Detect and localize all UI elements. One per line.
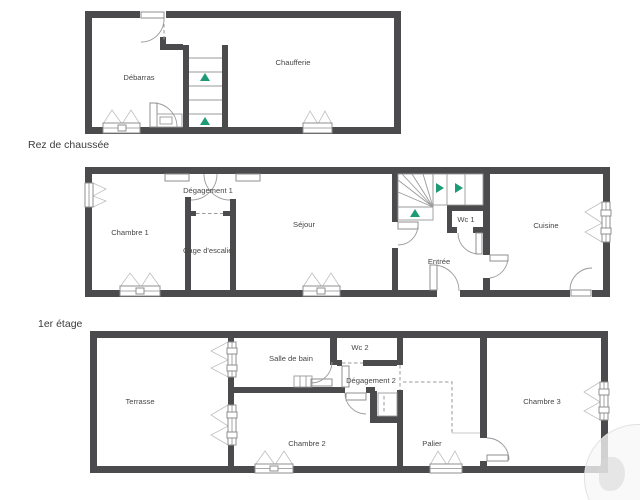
door-leaf bbox=[346, 393, 366, 400]
plan-ground: Chambre 1 Dégagement 1 Cage d'escalier S… bbox=[85, 167, 610, 297]
wall-segment bbox=[85, 11, 92, 134]
door-leaf bbox=[236, 174, 260, 181]
wall-segment bbox=[90, 466, 608, 473]
wall-segment bbox=[160, 44, 183, 50]
room-label-wc1: Wc 1 bbox=[457, 215, 474, 224]
window-cuisine-right bbox=[585, 202, 611, 242]
wall-segment bbox=[480, 461, 487, 466]
wall-segment bbox=[447, 205, 483, 211]
wall-segment bbox=[191, 211, 196, 216]
wall-segment bbox=[483, 278, 490, 290]
door-chambre2 bbox=[345, 393, 366, 414]
stairwell-opening-palier bbox=[403, 382, 480, 433]
door-swing-arc bbox=[570, 268, 592, 290]
wall-segment bbox=[397, 390, 403, 466]
ground-walls bbox=[85, 167, 610, 297]
wall-segment bbox=[363, 360, 397, 366]
closet-degagement2 bbox=[378, 393, 397, 416]
door-leaf bbox=[487, 455, 508, 461]
watermark-blob bbox=[599, 457, 625, 491]
door-leaf bbox=[398, 222, 418, 229]
wall-segment bbox=[90, 331, 608, 338]
door-leaf bbox=[165, 174, 189, 181]
door-leaf bbox=[430, 265, 437, 290]
window-terrasse-chambre2 bbox=[211, 405, 237, 445]
plan-first: Terrasse Salle de bain Wc 2 Dégagement 2… bbox=[90, 331, 608, 473]
basement-window-right bbox=[303, 111, 332, 133]
wall-segment bbox=[222, 45, 228, 127]
room-label-degagement2: Dégagement 2 bbox=[346, 376, 396, 385]
basement-window-left bbox=[103, 110, 140, 133]
wall-segment bbox=[483, 174, 490, 255]
floor-label-rez-de-chaussee: Rez de chaussée bbox=[28, 139, 109, 151]
door-entree-cuisine bbox=[490, 255, 508, 278]
room-label-chambre1: Chambre 1 bbox=[111, 228, 149, 237]
wall-segment bbox=[473, 227, 483, 233]
stair-direction-arrow-icon bbox=[200, 117, 210, 125]
wall-segment bbox=[234, 387, 345, 393]
door-salle-de-bain bbox=[311, 362, 332, 386]
door-leaf bbox=[476, 233, 482, 254]
room-label-wc2: Wc 2 bbox=[351, 343, 368, 352]
wall-segment bbox=[370, 416, 398, 423]
door-leaf bbox=[571, 290, 591, 296]
room-label-chambre3: Chambre 3 bbox=[523, 397, 561, 406]
stair-direction-arrow-icon bbox=[410, 209, 420, 217]
wall-segment bbox=[85, 290, 610, 297]
wall-segment bbox=[397, 338, 403, 365]
wall-segment bbox=[392, 174, 398, 222]
room-label-chaufferie: Chaufferie bbox=[276, 58, 311, 67]
wall-segment bbox=[330, 338, 337, 365]
wall-segment bbox=[85, 167, 610, 174]
basement-stairs bbox=[189, 58, 222, 125]
room-label-debarras: Débarras bbox=[123, 73, 154, 82]
stair-direction-arrow-icon bbox=[436, 183, 444, 193]
stair-direction-arrow-icon bbox=[455, 183, 463, 193]
wall-segment bbox=[337, 360, 342, 366]
floor-label-1er-etage: 1er étage bbox=[38, 318, 82, 330]
cabinet-inner bbox=[160, 117, 172, 124]
wall-segment bbox=[85, 11, 401, 18]
room-label-entree: Entrée bbox=[428, 257, 450, 266]
door-cuisine-exterior bbox=[570, 268, 592, 297]
stair-direction-arrow-icon bbox=[200, 73, 210, 81]
wall-segment bbox=[392, 248, 398, 290]
window-terrasse-sdb bbox=[211, 342, 237, 377]
room-label-chambre2: Chambre 2 bbox=[288, 439, 326, 448]
window-sejour-bottom bbox=[303, 273, 340, 296]
room-label-cuisine: Cuisine bbox=[533, 221, 558, 230]
radiator-salle-de-bain bbox=[294, 376, 312, 387]
window-palier-bottom bbox=[430, 451, 462, 473]
room-label-degagement1: Dégagement 1 bbox=[183, 186, 233, 195]
door-leaf bbox=[141, 12, 164, 18]
room-label-palier: Palier bbox=[422, 439, 442, 448]
door-leaf bbox=[490, 255, 508, 261]
floorplan-canvas: Rez de chaussée 1er étage bbox=[0, 0, 640, 500]
wall-segment bbox=[447, 211, 452, 233]
wall-segment bbox=[230, 199, 236, 290]
door-wc1 bbox=[458, 233, 482, 254]
window-chambre3-right bbox=[584, 382, 609, 420]
window-chambre1-left bbox=[85, 183, 106, 207]
window-chambre2-bottom bbox=[255, 451, 293, 473]
basement-inner-door bbox=[150, 103, 182, 127]
wall-segment bbox=[90, 331, 97, 473]
room-label-terrasse: Terrasse bbox=[125, 397, 154, 406]
ground-stairs bbox=[398, 174, 483, 220]
room-label-sejour: Séjour bbox=[293, 220, 315, 229]
wall-segment bbox=[452, 227, 457, 233]
door-chambre3 bbox=[487, 438, 509, 461]
plan-basement: Débarras Chaufferie bbox=[85, 11, 401, 134]
wall-segment bbox=[223, 211, 230, 216]
wall-segment bbox=[185, 197, 191, 290]
room-label-cage-escalier: Cage d'escalier bbox=[183, 246, 236, 255]
wall-segment bbox=[183, 45, 189, 127]
wall-segment bbox=[480, 338, 487, 438]
door-sejour-entree bbox=[398, 222, 418, 245]
door-leaf bbox=[150, 103, 157, 127]
wall-segment bbox=[394, 11, 401, 134]
room-label-salle-de-bain: Salle de bain bbox=[269, 354, 313, 363]
cabinet bbox=[157, 114, 182, 127]
window-chambre1-bottom bbox=[120, 273, 160, 296]
